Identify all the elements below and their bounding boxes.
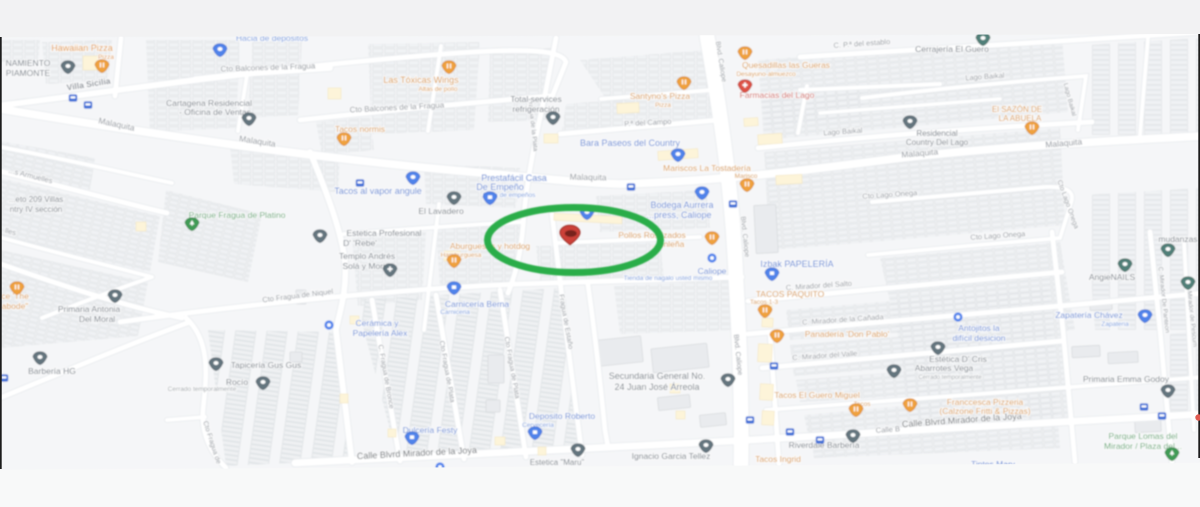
svg-text:De Empeño: De Empeño: [476, 182, 524, 192]
svg-text:Primaria Emma Godoy: Primaria Emma Godoy: [1083, 374, 1170, 384]
svg-text:PIAMONTE: PIAMONTE: [6, 68, 51, 78]
svg-text:Cerrado temporalmente: Cerrado temporalmente: [918, 375, 982, 381]
svg-text:Residencial: Residencial: [916, 129, 958, 138]
svg-text:Cerrado temporalmente: Cerrado temporalmente: [168, 386, 237, 393]
svg-text:Desayuno-almuezco: Desayuno-almuezco: [736, 71, 796, 78]
svg-text:Carnicería Berna: Carnicería Berna: [445, 299, 510, 309]
svg-text:Tienda de nagalo usted mismo: Tienda de nagalo usted mismo: [624, 275, 713, 282]
svg-text:Papelería Alex: Papelería Alex: [353, 328, 409, 338]
svg-text:Total services: Total services: [510, 94, 562, 104]
svg-text:Santyno's Pizza: Santyno's Pizza: [630, 91, 690, 101]
svg-text:El SAZÓN DE: El SAZÓN DE: [992, 105, 1042, 114]
svg-text:...eto 209 Villas: ...eto 209 Villas: [9, 195, 64, 204]
svg-text:difícil desicion: difícil desicion: [953, 333, 1006, 343]
svg-text:- Oficina de Ventas: - Oficina de Ventas: [179, 107, 251, 117]
svg-text:El Lavadero: El Lavadero: [418, 206, 464, 216]
svg-text:LA ABUELA: LA ABUELA: [999, 114, 1042, 123]
svg-text:24 Juan José Árreola: 24 Juan José Árreola: [614, 382, 699, 392]
svg-text:Hamburguesa: Hamburguesa: [441, 252, 482, 259]
svg-text:Cerrajería El Guero: Cerrajería El Guero: [915, 44, 989, 54]
svg-text:Tapicería Gus Gus: Tapicería Gus Gus: [231, 360, 301, 370]
svg-text:Hawaiian Pizza: Hawaiian Pizza: [51, 43, 113, 53]
svg-text:Primaria Antonia: Primaria Antonia: [58, 304, 121, 314]
svg-text:abode": abode": [2, 301, 29, 311]
svg-text:Ignacio Garcia Tellez: Ignacio Garcia Tellez: [632, 451, 711, 461]
svg-text:Estetica Profesional: Estetica Profesional: [346, 228, 421, 238]
svg-text:Parque Fragua de Platino: Parque Fragua de Platino: [189, 210, 286, 220]
svg-text:Las Tóxicas Wings: Las Tóxicas Wings: [383, 75, 459, 85]
svg-text:Templo Andrés: Templo Andrés: [339, 251, 395, 261]
svg-text:Bara Paseos del Country: Bara Paseos del Country: [580, 138, 681, 148]
svg-text:Estetica "Maru": Estetica "Maru": [530, 458, 585, 467]
svg-text:Mariscos La Tostadería: Mariscos La Tostadería: [663, 163, 751, 173]
svg-text:AngieNAILS: AngieNAILS: [1089, 272, 1136, 282]
svg-text:...press, Caliope: ...press, Caliope: [646, 210, 711, 220]
svg-text:TACOS PAQUITO: TACOS PAQUITO: [756, 289, 825, 299]
svg-text:Zapatería Chávez: Zapatería Chávez: [1055, 310, 1123, 320]
svg-text:Abarrotes Vega: Abarrotes Vega: [915, 363, 974, 373]
svg-text:Calle B: Calle B: [875, 424, 900, 435]
svg-text:Country Del Lago: Country Del Lago: [906, 138, 969, 147]
svg-text:mudanzas: mudanzas: [1158, 234, 1197, 244]
svg-text:Tacos al vapor angule: Tacos al vapor angule: [334, 186, 422, 196]
svg-text:ntry IV sección: ntry IV sección: [10, 205, 62, 214]
svg-text:Deposito Roberto: Deposito Roberto: [529, 411, 595, 421]
svg-text:Quesadillas las Gueras: Quesadillas las Gueras: [742, 60, 830, 70]
svg-text:Malaquita: Malaquita: [570, 172, 607, 183]
svg-text:Cerámica y: Cerámica y: [356, 318, 400, 328]
svg-text:Tacos El Guero Miguel: Tacos El Guero Miguel: [774, 390, 860, 400]
svg-text:Tacos Ingrid: Tacos Ingrid: [755, 454, 801, 464]
svg-text:NAMIENTO: NAMIENTO: [6, 58, 51, 68]
svg-text:(Calzone Fritti & Pizzas): (Calzone Fritti & Pizzas): [939, 406, 1030, 416]
svg-text:Bodega Aurrera: Bodega Aurrera: [650, 200, 713, 210]
svg-text:D' 'Rebe': D' 'Rebe': [343, 238, 377, 248]
svg-text:Tacos normis: Tacos normis: [335, 124, 385, 134]
svg-text:Barbería HG: Barbería HG: [28, 366, 76, 376]
svg-text:Farmacias del Lago: Farmacias del Lago: [740, 90, 815, 100]
svg-text:Del Moral: Del Moral: [79, 314, 115, 324]
svg-text:Pizza: Pizza: [655, 102, 671, 109]
svg-text:Altas de pollo: Altas de pollo: [418, 86, 457, 93]
svg-text:Antojitos la: Antojitos la: [958, 323, 1000, 333]
svg-text:Parque Lomas del: Parque Lomas del: [1109, 431, 1178, 441]
svg-text:Carniceria: Carniceria: [440, 309, 470, 316]
svg-text:Secundaria General No.: Secundaria General No.: [609, 371, 706, 381]
svg-text:Zapateria: Zapateria: [1101, 321, 1129, 328]
svg-text:Panadería 'Don Pablo': Panadería 'Don Pablo': [805, 329, 890, 339]
